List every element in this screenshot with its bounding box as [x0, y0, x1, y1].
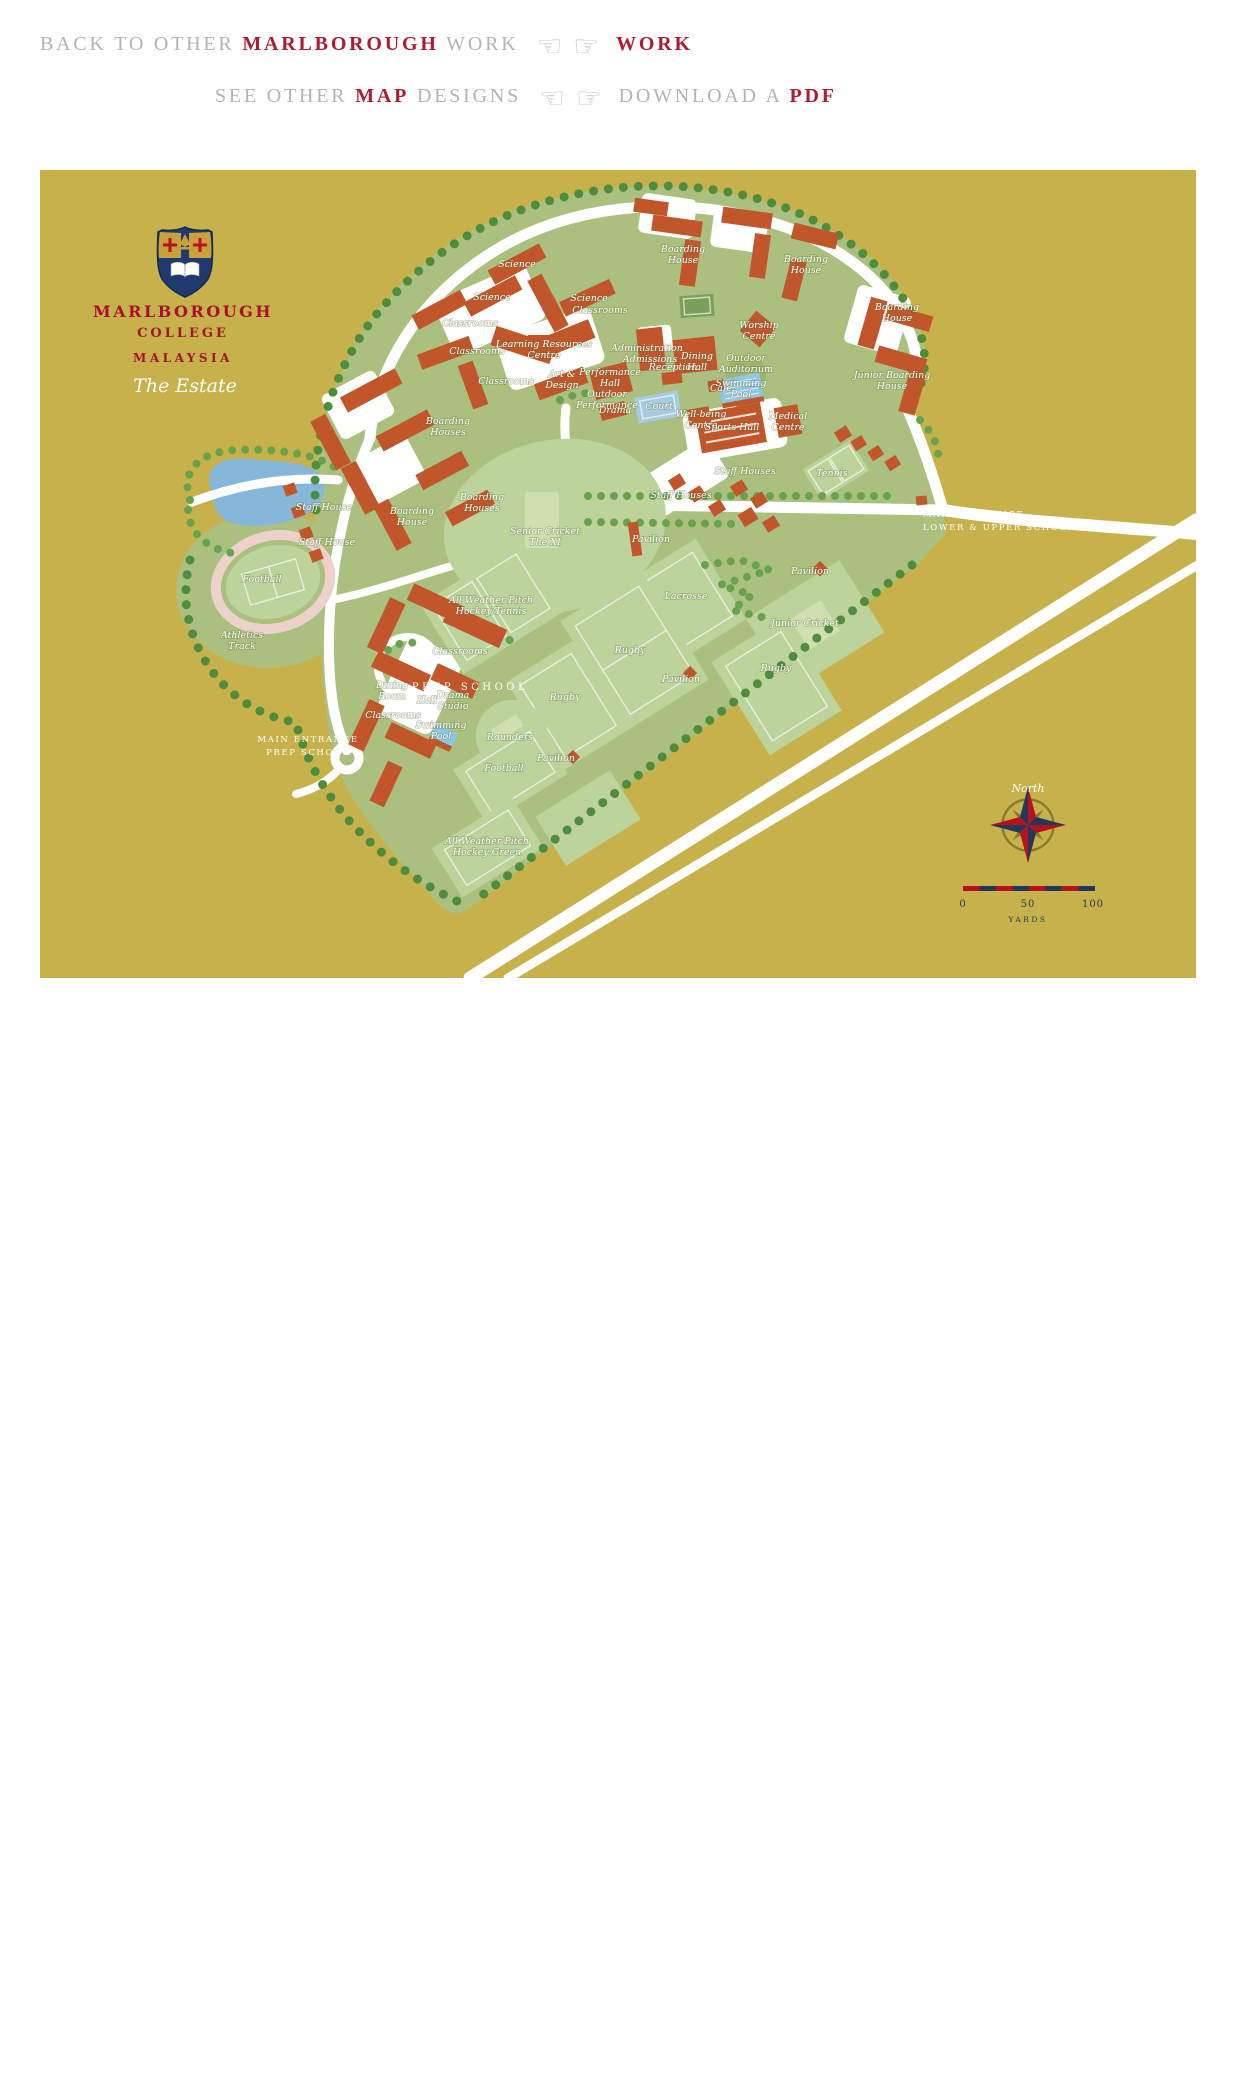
map-label: Rugby	[760, 663, 792, 674]
map-label: Administration	[610, 343, 683, 354]
map-label: Staff Houses	[714, 466, 775, 477]
map-label: COLLEGE	[137, 326, 229, 341]
map-label: WorshipCentre	[739, 320, 779, 342]
map-label: Pavilion	[536, 753, 575, 764]
map-label: YARDS	[1007, 915, 1047, 924]
map-label: The Estate	[133, 375, 237, 397]
scale-bar	[963, 886, 1095, 891]
map-label: MALAYSIA	[133, 351, 233, 365]
map-label: Classrooms	[572, 305, 628, 316]
map-label: Staff House	[296, 502, 353, 513]
estate-map: MARLBOROUGHCOLLEGEMALAYSIAThe EstateScie…	[40, 170, 1196, 978]
map-label: Science	[473, 292, 511, 303]
map-label: Football	[483, 763, 523, 774]
nav-text-segment: PDF	[789, 85, 836, 107]
map-label: 0	[959, 899, 966, 910]
nav-text-segment: DESIGNS	[409, 85, 521, 107]
right-pointing-hand-icon: ☞	[576, 84, 605, 113]
map-label: Tennis	[816, 468, 847, 479]
map-label: Rugby	[614, 645, 646, 656]
map-label: MedicalCentre	[768, 411, 808, 433]
right-pointing-hand-icon: ☞	[573, 32, 602, 61]
map-label: Football	[241, 574, 281, 585]
map-label: Classrooms	[432, 646, 488, 657]
map-label: Hall	[416, 695, 437, 706]
map-label: Classrooms	[365, 710, 421, 721]
see-map-designs-link[interactable]: SEE OTHER MAP DESIGNS	[215, 85, 521, 108]
map-label: Science	[498, 259, 536, 270]
nav-line-map-designs[interactable]: SEE OTHER MAP DESIGNS ☜ ☞ DOWNLOAD A PDF	[215, 82, 837, 111]
map-label: All Weather PitchHockey Green	[444, 836, 529, 858]
nav-text-segment: DOWNLOAD A	[619, 85, 790, 107]
nav-text-segment: MAP	[355, 85, 409, 107]
map-label: Staff House	[299, 537, 356, 548]
map-label: Lacrosse	[664, 591, 708, 602]
map-label: All Weather PitchHockey/Tennis	[448, 595, 533, 617]
map-label: 50	[1021, 899, 1036, 910]
map-label: North	[1010, 782, 1044, 795]
left-pointing-hand-icon: ☜	[536, 32, 565, 61]
map-label: Classrooms	[478, 376, 534, 387]
map-label: DiningRoom	[375, 680, 408, 702]
map-label: Drama	[598, 405, 632, 416]
left-pointing-hand-icon: ☜	[539, 84, 568, 113]
map-label: BoardingHouses	[459, 492, 504, 514]
map-label: Art &Design	[544, 369, 578, 391]
map-label: Pavilion	[790, 566, 829, 577]
map-label: Science	[570, 293, 608, 304]
nav-text-segment: SEE OTHER	[215, 85, 355, 107]
map-label: Rounders	[486, 732, 533, 743]
map-label: OutdoorAuditorium	[718, 353, 773, 375]
map-label: Rugby	[549, 692, 581, 703]
map-label: Pavilion	[631, 534, 670, 545]
map-label: Classrooms	[442, 318, 498, 329]
map-label: Staff Houses	[650, 490, 711, 501]
map-label: PREP SCHOOL	[412, 682, 528, 693]
map-label: 100	[1082, 899, 1104, 910]
page: BACK TO OTHER MARLBOROUGH WORK ☜ ☞ WORK …	[0, 0, 1236, 2074]
work-link[interactable]: WORK	[616, 33, 693, 56]
map-label: BoardingHouses	[425, 416, 470, 438]
estate-map-svg: MARLBOROUGHCOLLEGEMALAYSIAThe EstateScie…	[40, 170, 1196, 978]
map-label: Junior Cricket	[769, 618, 839, 629]
map-label: Pavilion	[661, 674, 700, 685]
map-label: MARLBOROUGH	[93, 302, 273, 321]
nav-line-work[interactable]: BACK TO OTHER MARLBOROUGH WORK ☜ ☞ WORK	[40, 30, 693, 59]
map-label: Sports Hall	[705, 422, 760, 433]
nav-text-segment: BACK TO OTHER	[40, 33, 242, 55]
nav-text-segment: MARLBOROUGH	[242, 33, 438, 55]
download-pdf-link[interactable]: DOWNLOAD A PDF	[619, 85, 837, 108]
map-label: DramaStudio	[436, 690, 470, 712]
nav-text-segment: WORK	[439, 33, 519, 55]
back-to-work-link[interactable]: BACK TO OTHER MARLBOROUGH WORK	[40, 33, 518, 56]
map-label: Court	[645, 401, 673, 412]
nav-text-segment: WORK	[616, 33, 693, 55]
